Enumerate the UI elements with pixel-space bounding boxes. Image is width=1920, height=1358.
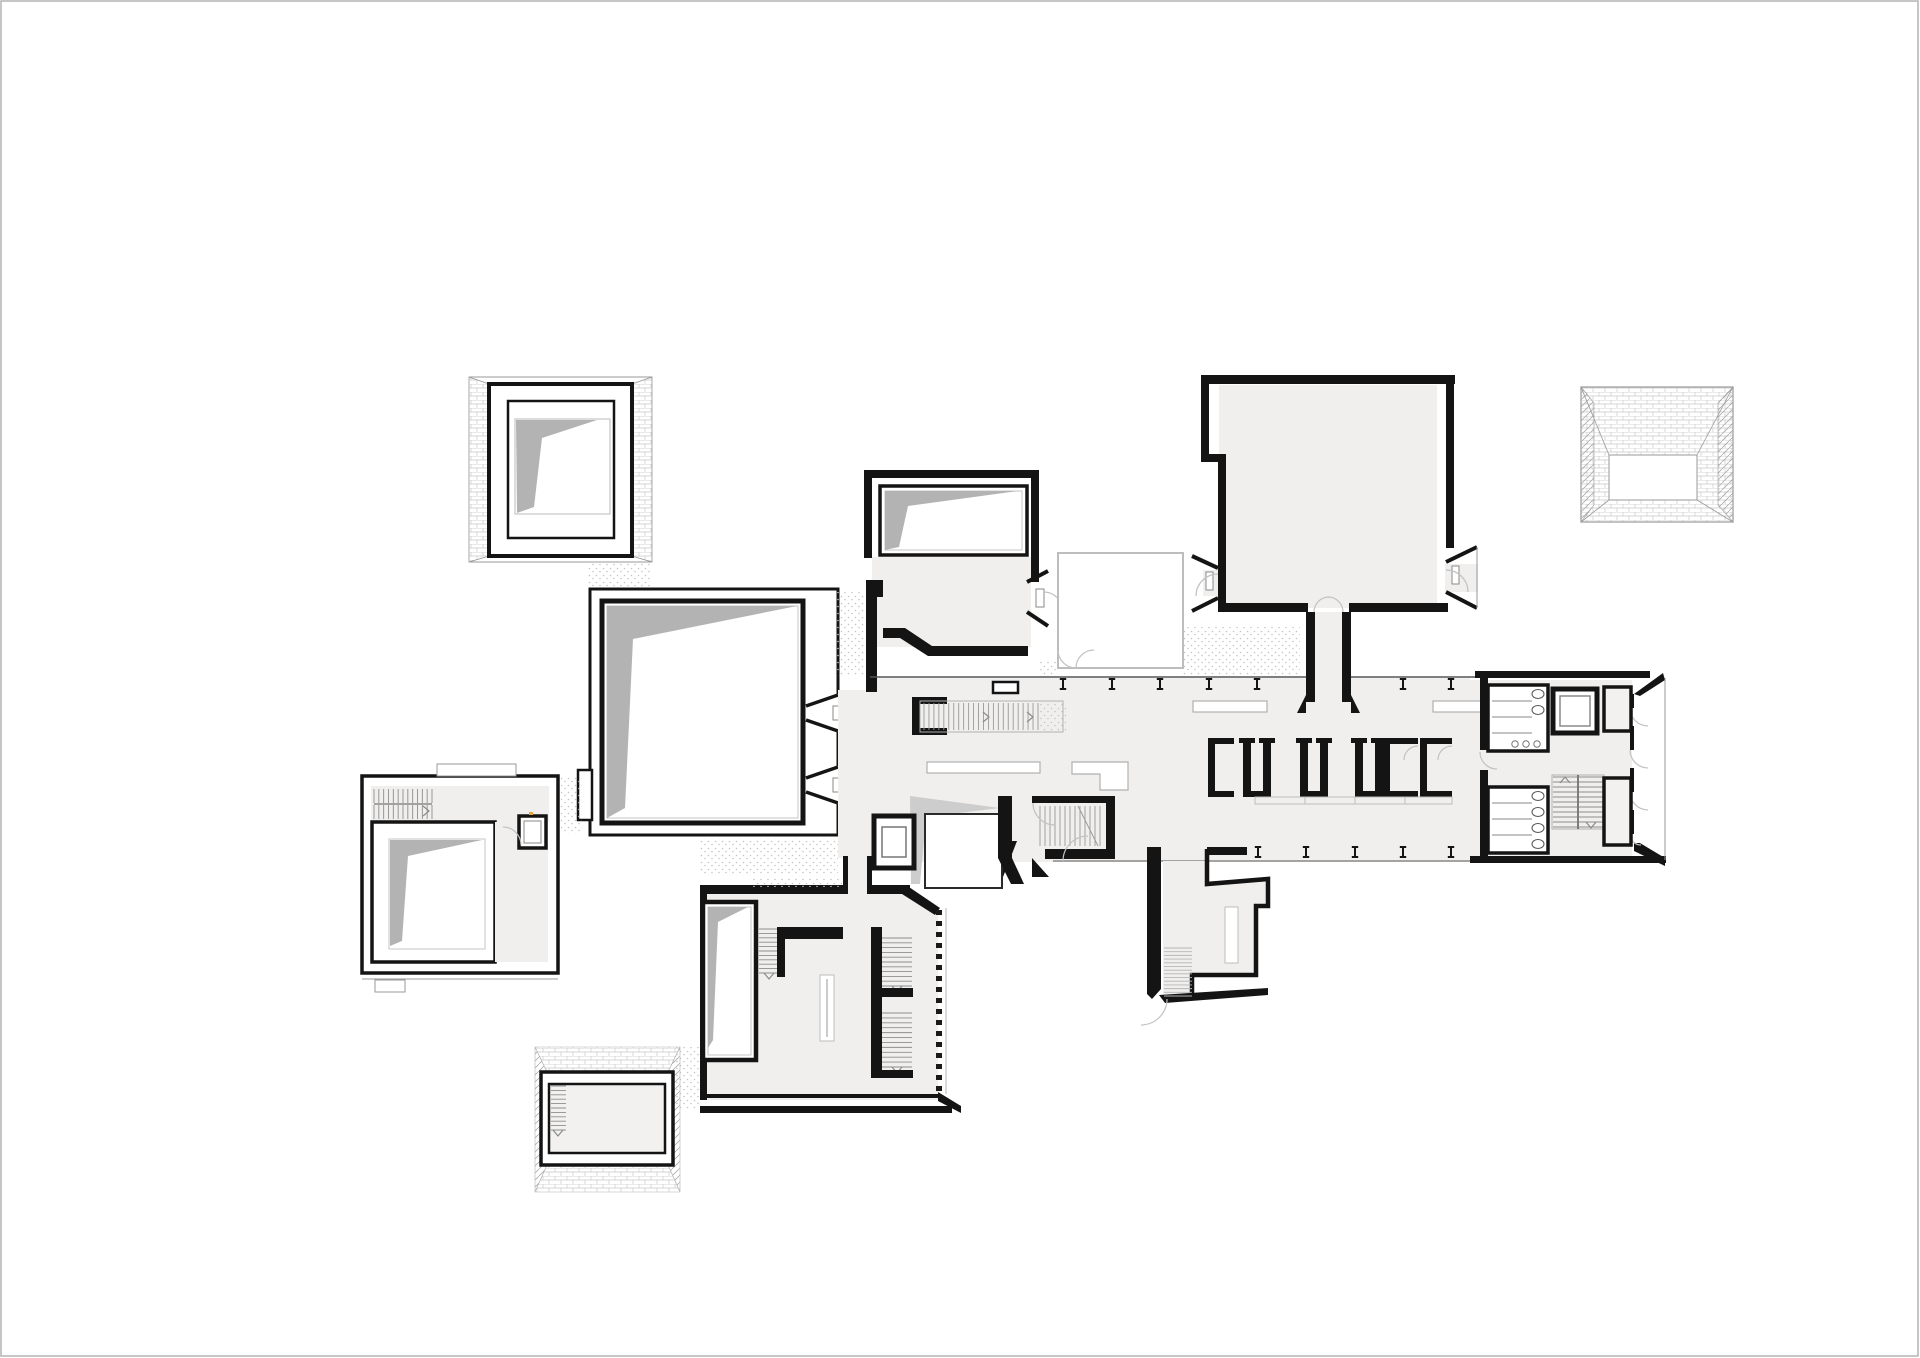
niche-u3-cap-l	[1351, 738, 1367, 743]
stair-room-h-wall-right	[1106, 796, 1115, 856]
ground-stipple-d	[676, 1047, 700, 1109]
wing-j-display-slot	[1225, 907, 1238, 963]
corridor-stair-fade	[1040, 702, 1066, 732]
niche-u3-bottom	[1355, 791, 1383, 797]
wing-e-wall-mid-2	[871, 988, 913, 997]
wing-e-spine-wall	[871, 927, 882, 1075]
pavilion-d-inner	[549, 1084, 665, 1153]
corridor-duct-box	[993, 682, 1018, 693]
pavilion-p-wall-bottom-east	[1349, 603, 1448, 612]
pavilion-p-wall-left-inner	[1218, 459, 1226, 611]
niche-u1-bottom	[1243, 791, 1271, 797]
niche-u1-left	[1243, 738, 1251, 797]
roof-q-skylight	[1609, 455, 1697, 500]
wing-e-passage-wall-left	[843, 856, 848, 894]
ground-stipple-b	[700, 838, 838, 876]
niche-u1-right	[1263, 738, 1271, 797]
pavilion-a-hatch-right	[632, 377, 652, 562]
wing-e-wall-mid	[783, 927, 843, 939]
niche-u2-left	[1300, 738, 1308, 797]
pavilion-p-door-east	[1452, 566, 1459, 584]
niche-u3-left	[1355, 738, 1363, 797]
niche-u2-cap-l	[1296, 738, 1312, 743]
ground-stipple-a	[588, 563, 650, 588]
ground-stipple-l	[835, 592, 864, 676]
pavilion-p-floor-funnel-east	[1445, 564, 1478, 592]
corridor-floor-link	[838, 835, 872, 858]
pavilion-a-hatch-left	[469, 377, 489, 562]
pavilion-p-floor	[1219, 385, 1437, 608]
niche-u2-cap-r	[1316, 738, 1332, 743]
pavilion-p-wall-top	[1201, 375, 1455, 384]
ground-stipple-n-2	[1040, 660, 1058, 676]
passage-p-wall-left	[1306, 612, 1315, 702]
core-r-wall-top	[1475, 671, 1650, 678]
vestibule-outer	[874, 816, 914, 868]
niche-c1-bottom	[1383, 791, 1418, 797]
pavilion-p-wall-left-outer	[1201, 375, 1209, 460]
wing-e-wall-bottom-inner	[700, 1094, 940, 1098]
wing-j-wall-top	[1207, 847, 1247, 855]
wc-south-wall	[1488, 787, 1548, 853]
pavilion-p-wall-right	[1446, 375, 1454, 548]
wing-j-blade-wall	[1147, 847, 1161, 999]
niche-u2-right	[1320, 738, 1328, 797]
plan-elements	[1, 1, 1918, 1356]
pavilion-l-door	[1036, 589, 1044, 607]
roof-q-slope-right	[1718, 387, 1733, 522]
pavilion-c-bottom-stub	[375, 980, 405, 992]
pavilion-d-hatch-top	[535, 1047, 680, 1072]
stair-room-h-wall-bottom	[1045, 849, 1115, 859]
ground-stipple-n	[1183, 627, 1300, 676]
corridor-bench-2	[1193, 701, 1267, 712]
ground-stipple-e	[752, 878, 842, 887]
pavilion-c-top-stub	[437, 764, 516, 776]
corridor-floor-west	[838, 690, 874, 835]
stair-room-h-wall-top	[1032, 796, 1114, 803]
corridor-bench-1	[927, 762, 1040, 773]
passage-p-wall-right	[1342, 612, 1351, 702]
niche-wall-1-cap-bottom	[1208, 791, 1234, 797]
niche-wall-1-cap-top	[1208, 738, 1234, 744]
niche-u1-cap-r	[1259, 738, 1275, 743]
corridor-floor-passage	[1314, 612, 1343, 680]
ground-stipple-c	[561, 777, 582, 834]
core-room-ne	[1604, 687, 1631, 731]
niche-u1-cap-l	[1239, 738, 1255, 743]
drawing-page	[0, 0, 1920, 1358]
wing-e-passage-wall-right	[867, 856, 872, 894]
wing-e-wall-mid-3	[871, 1070, 913, 1078]
niche-c1-left	[1383, 738, 1390, 797]
room-g-wall	[925, 814, 1002, 888]
niche-c2-left	[1420, 738, 1427, 797]
room-n-outline	[1058, 553, 1183, 668]
core-r-wall-bottom	[1470, 856, 1666, 863]
niche-wall-1	[1208, 738, 1215, 797]
pavilion-c-lift-marker	[529, 812, 533, 815]
pavilion-l-wall-left	[864, 470, 872, 558]
niche-u3-right	[1375, 738, 1383, 797]
pavilion-d-hatch-bottom	[535, 1165, 680, 1192]
pavilion-l-wall-right	[1031, 470, 1039, 582]
niche-u2-bottom	[1300, 791, 1328, 797]
floorplan-svg	[0, 0, 1920, 1358]
wing-e-wall-bottom-outer	[700, 1106, 952, 1113]
core-room-se	[1604, 778, 1631, 845]
niche-c2-bottom	[1420, 791, 1452, 797]
pavilion-p-wall-bottom-west	[1218, 603, 1308, 612]
roof-q-slope-left	[1581, 387, 1594, 522]
pavilion-l-wall-top	[864, 470, 1039, 478]
